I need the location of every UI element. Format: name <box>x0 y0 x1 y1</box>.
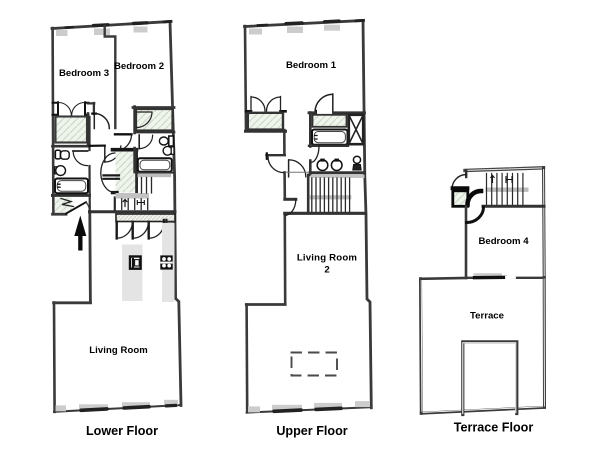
svg-text:Bedroom 2: Bedroom 2 <box>114 61 164 72</box>
svg-text:Terrace Floor: Terrace Floor <box>454 421 534 435</box>
svg-text:Living Room: Living Room <box>89 345 148 356</box>
svg-text:Bedroom 4: Bedroom 4 <box>478 236 529 247</box>
svg-text:Upper Floor: Upper Floor <box>276 424 347 438</box>
svg-text:Bedroom 3: Bedroom 3 <box>59 68 109 79</box>
svg-text:Lower Floor: Lower Floor <box>86 424 158 438</box>
svg-text:2: 2 <box>324 265 329 276</box>
svg-text:Bedroom 1: Bedroom 1 <box>286 60 337 71</box>
svg-text:Living Room: Living Room <box>297 253 357 264</box>
svg-text:Terrace: Terrace <box>470 311 504 322</box>
